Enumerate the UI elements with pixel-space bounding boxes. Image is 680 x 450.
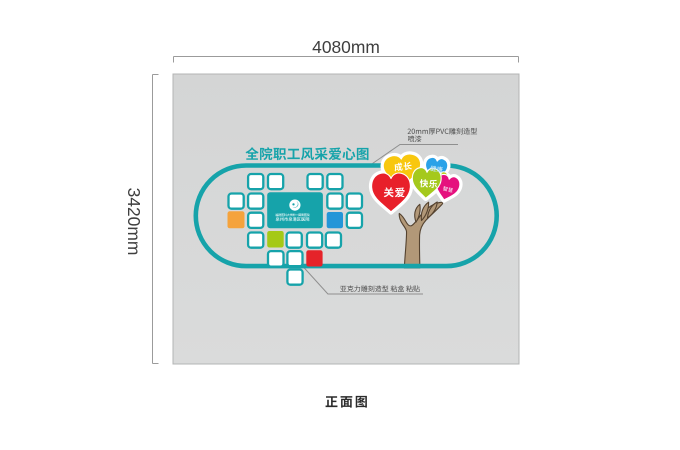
svg-text:4080mm: 4080mm: [312, 37, 380, 57]
svg-text:3420mm: 3420mm: [124, 188, 144, 256]
